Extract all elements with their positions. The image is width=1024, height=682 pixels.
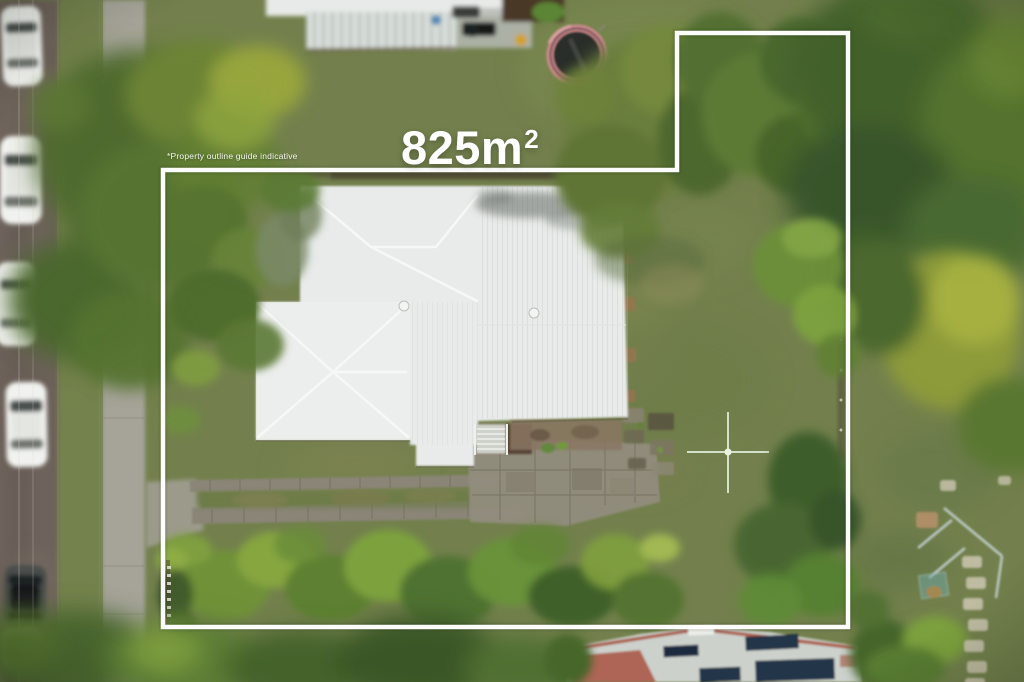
- aerial-photo-scene: [0, 0, 1024, 682]
- aerial-photo: 825m2 *Property outline guide indicative: [0, 0, 1024, 682]
- vignette: [0, 0, 1024, 682]
